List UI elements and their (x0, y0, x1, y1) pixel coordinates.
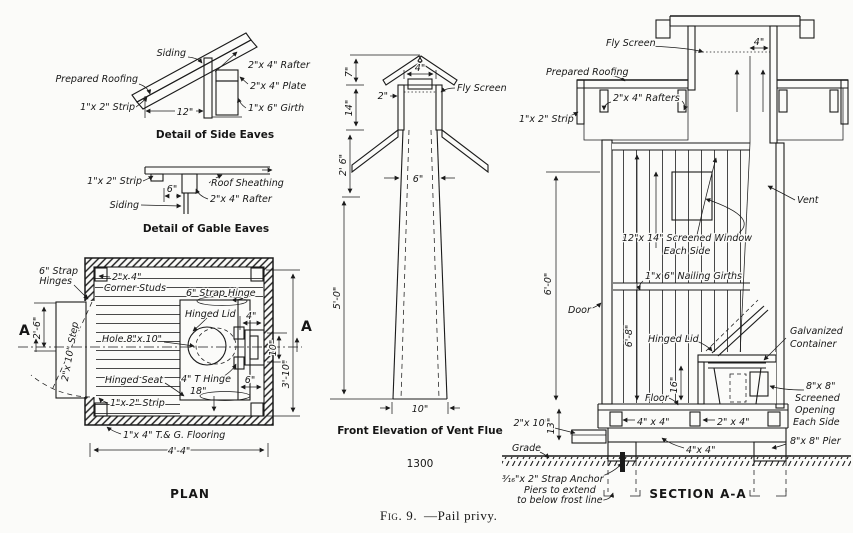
side-eaves-title: Detail of Side Eaves (156, 129, 274, 141)
section-rear-wall (776, 143, 784, 408)
plan-strip-label: 1"x 2" Strip (110, 398, 165, 409)
flue-roof-flare-left (352, 130, 398, 172)
section-vent-label: Vent (797, 195, 820, 206)
plan-strap-hinges-label-2: Hinges (39, 276, 72, 287)
gable-eaves-title: Detail of Gable Eaves (143, 223, 269, 235)
gable-rafter-label: 2"x 4" Rafter (210, 194, 273, 205)
plan-corner-studs-label-2: Corner Studs (104, 283, 166, 294)
plan-strap-hinge-bottom (200, 392, 250, 401)
flue-dim-2: 2" (378, 91, 388, 102)
plan-dim-6: 6" (245, 375, 255, 386)
plan-vent-flue-slot (250, 336, 258, 359)
plan-section-marker-right: A (301, 319, 312, 335)
side-eaves-rafter-label: 2"x 4" Rafter (248, 60, 311, 71)
section-strap-anchor (620, 452, 625, 472)
section-sill-label: 2" x 4" (717, 417, 750, 428)
section-hinged-lid-label: Hinged Lid (648, 334, 700, 345)
side-eaves-drawing: Siding Prepared Roofing 1"x 2" Strip 12"… (55, 33, 310, 141)
flue-dim-5-0: 5'-0" (332, 287, 343, 310)
gable-eaves-drawing: 1"x 2" Strip 6" Siding Roof Sheathing 2"… (87, 167, 284, 235)
gable-strip-label: 1"x 2" Strip (87, 176, 142, 187)
gable-sheathing-label: Roof Sheathing (211, 178, 284, 189)
plan-dim-10: 10" (268, 340, 279, 356)
flue-roof-flare-right (442, 130, 488, 172)
section-step (572, 430, 606, 443)
section-opening-label-3: Opening (795, 405, 835, 416)
section-dim-13: 13" (546, 418, 557, 434)
plan-hinge-block-bottom (234, 357, 244, 369)
plan-corner-studs-label-1: 2"x 4" (112, 272, 141, 283)
flue-dim-7: 7" (344, 67, 355, 77)
section-piers-note-2: to below frost line (517, 495, 603, 506)
section-skid-label: 4" x 4" (637, 417, 670, 428)
side-eaves-roofing-label: Prepared Roofing (55, 74, 138, 85)
flue-dim-6: 6" (413, 174, 423, 185)
plan-dim-4-4: 4'-4" (168, 446, 191, 457)
roofing-slab (132, 33, 251, 102)
side-eaves-strip-label: 1"x 2" Strip (80, 102, 135, 113)
plan-dim-3-10: 3'-10" (281, 360, 292, 389)
flue-dim-4: 4" (415, 63, 425, 74)
plan-dim-18: 18" (190, 386, 206, 397)
stack-wall-left (688, 26, 695, 90)
gable-rafter-block (182, 174, 197, 193)
section-door-label: Door (568, 305, 592, 316)
flue-dim-2-6: 2' 6" (338, 154, 349, 176)
section-galvanized-label-1: Galvanized (790, 326, 844, 337)
section-pier-label: 8"x 8" Pier (790, 436, 842, 447)
plan-title: PLAN (170, 487, 210, 501)
section-drawing: Fly Screen 4" Prepared Roofing 2"x 4" Ra… (502, 16, 851, 506)
figure-caption-prefix: Fig. 9. (380, 508, 417, 523)
plan-hinged-seat-label: Hinged Seat (105, 375, 164, 386)
section-fly-screen-label: Fly Screen (606, 38, 656, 49)
section-runner-label: 4"x 4" (686, 445, 715, 456)
side-eaves-girth-label: 1"x 6" Girth (248, 103, 304, 114)
side-eaves-plate-label: 2"x 4" Plate (250, 81, 306, 92)
plate-block (216, 70, 238, 81)
figure-canvas: Siding Prepared Roofing 1"x 2" Strip 12"… (0, 0, 853, 533)
section-dim-6-0: 6'-0" (543, 273, 554, 296)
section-opening-label-2: Screened (795, 393, 841, 404)
girth-block (216, 81, 238, 115)
section-left-wall (602, 140, 612, 404)
section-window-label-1: 12"x 14" Screened Window (622, 233, 752, 244)
section-title: SECTION A-A (649, 487, 746, 501)
section-window-label-2: Each Side (664, 246, 711, 257)
section-girths-label: 1"x 6" Nailing Girths (645, 271, 742, 282)
plan-section-marker-left: A (19, 323, 30, 339)
section-strip-label: 1"x 2" Strip (519, 114, 574, 125)
section-galvanized-label-2: Container (790, 339, 838, 350)
side-eaves-dim-12: 12" (177, 107, 193, 118)
section-floor-label: Floor (645, 393, 670, 404)
gable-dim-6: 6" (167, 184, 177, 195)
plan-hinged-lid-label: Hinged Lid (185, 309, 237, 320)
stack-cap-end-left (656, 20, 670, 38)
plan-strap-hinge-label: 6" Strap Hinge (186, 288, 256, 299)
plan-dim-4: 4" (246, 311, 256, 322)
section-opening-label-1: 8"x 8" (806, 381, 835, 392)
plan-door-opening (83, 301, 96, 397)
section-strap-anchor-label: ³⁄₁₆"x 2" Strap Anchor (502, 474, 605, 485)
section-grade-label: Grade (512, 443, 541, 454)
gable-siding-label: Siding (110, 200, 139, 211)
section-dim-2x10: 2"x 10" (513, 418, 549, 429)
plan-dim-2-6: 2'-6" (32, 317, 43, 340)
plan-hole (196, 328, 236, 364)
stack-wall-right (770, 26, 777, 143)
stack-cap-end-right (800, 20, 814, 38)
plan-hole-label: Hole 8"x 10" (102, 334, 162, 345)
vent-flue-title: Front Elevation of Vent Flue (337, 425, 502, 437)
flue-outlet (408, 79, 432, 89)
section-opening-label-4: Each Side (793, 417, 840, 428)
section-dim-6-8: 6'-8" (624, 325, 635, 348)
rafter-slab (137, 40, 257, 109)
siding-board (204, 58, 212, 118)
flue-screen-frame-left (398, 85, 404, 130)
side-eaves-siding-label: Siding (157, 48, 186, 59)
plan-drawing: 6" Strap Hinges 2"x 4" Corner Studs 6" S… (18, 258, 312, 501)
plan-flooring-label: 1"x 4" T.& G. Flooring (123, 430, 225, 441)
figure-caption-text: —Pail privy. (423, 508, 498, 523)
figure-caption: Fig. 9. —Pail privy. (380, 508, 498, 523)
plan-hinge-block-top (234, 327, 244, 339)
gable-strip-block (151, 174, 163, 181)
flue-fly-screen-label: Fly Screen (457, 83, 507, 94)
section-dim-4: 4" (754, 37, 764, 48)
section-fascia-left (577, 80, 584, 124)
plan-vent-flue (245, 330, 264, 365)
flue-dim-14: 14" (344, 100, 355, 116)
section-dim-16: 16" (669, 377, 680, 393)
plan-step-label: 2"x 10" Step (60, 321, 81, 382)
section-roofing-label: Prepared Roofing (546, 67, 629, 78)
section-rafters-label: 2"x 4" Rafters (613, 93, 680, 104)
vent-flue-drawing: Fly Screen 4" 2" 7" 14" 2' 6" 5'-0" 6" 1… (330, 55, 507, 470)
flue-dim-10: 10" (412, 404, 428, 415)
section-fascia-right (841, 80, 848, 124)
figure-page: Siding Prepared Roofing 1"x 2" Strip 12"… (0, 0, 853, 533)
vent-flue-number: 1300 (407, 458, 434, 470)
plan-t-hinge-label: 4" T Hinge (181, 374, 231, 385)
